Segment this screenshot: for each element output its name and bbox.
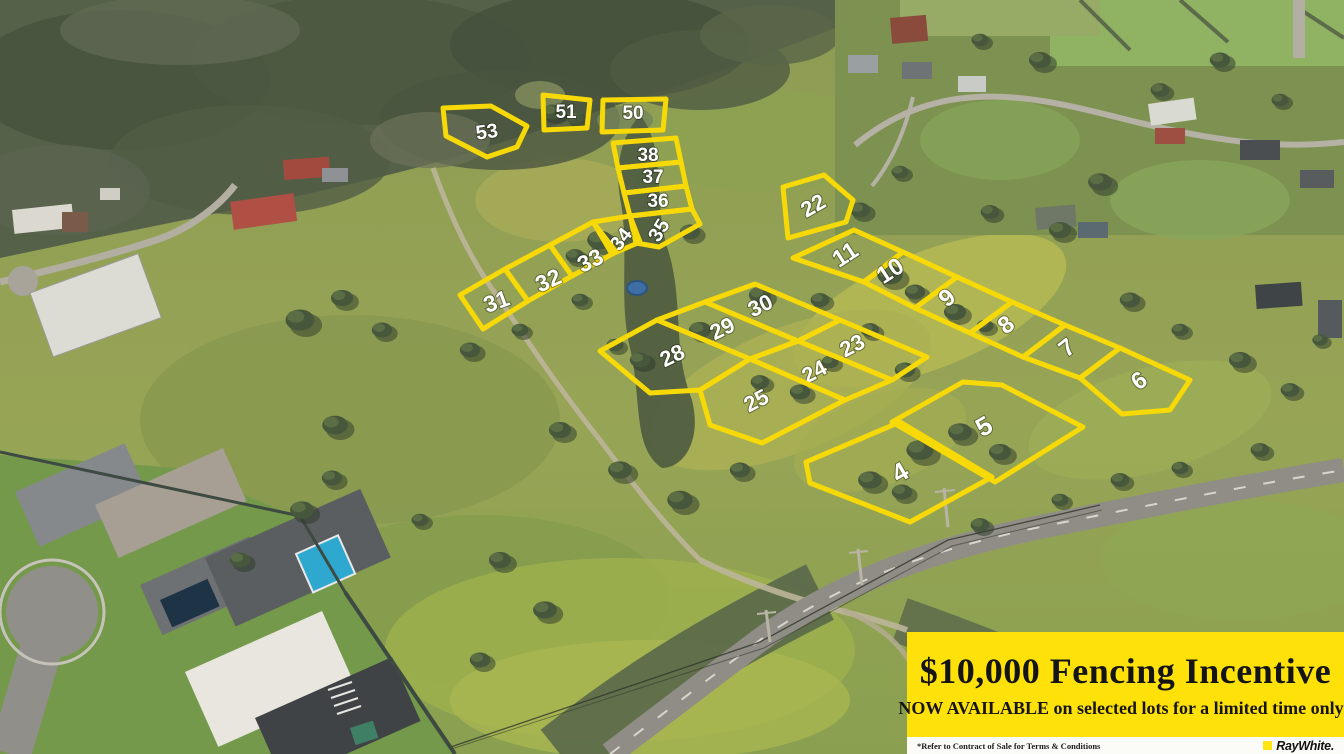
fencing-incentive-banner: $10,000 Fencing Incentive NOW AVAILABLE … — [907, 632, 1344, 737]
lot-label-4: 4 — [886, 455, 914, 488]
aerial-subdivision-photo: 5351503837363534333231221110987630292823… — [0, 0, 1344, 754]
legal-strip: *Refer to Contract of Sale for Terms & C… — [907, 737, 1344, 754]
lot-label-37: 37 — [642, 167, 663, 188]
lot-label-5: 5 — [970, 410, 998, 443]
lot-label-7: 7 — [1054, 333, 1081, 363]
lot-label-10: 10 — [872, 252, 909, 289]
lot-label-50: 50 — [622, 103, 643, 124]
lot-label-6: 6 — [1126, 366, 1152, 396]
lot-label-25: 25 — [740, 384, 773, 418]
banner-fine-print: *Refer to Contract of Sale for Terms & C… — [917, 741, 1100, 751]
lot-label-28: 28 — [656, 339, 689, 372]
lot-label-53: 53 — [474, 120, 499, 145]
lot-label-30: 30 — [744, 289, 777, 322]
lot-label-9: 9 — [933, 283, 961, 312]
lot-label-36: 36 — [647, 191, 668, 212]
lot-label-32: 32 — [531, 263, 565, 297]
raywhite-logo-text: RayWhite. — [1276, 739, 1334, 753]
lot-label-8: 8 — [993, 310, 1020, 340]
banner-subline: NOW AVAILABLE on selected lots for a lim… — [898, 698, 1344, 719]
lot-label-22: 22 — [796, 189, 830, 223]
banner-headline: $10,000 Fencing Incentive — [920, 650, 1331, 692]
raywhite-logo-square — [1263, 741, 1272, 750]
lot-label-51: 51 — [555, 102, 577, 123]
raywhite-logo: RayWhite. — [1263, 739, 1334, 753]
